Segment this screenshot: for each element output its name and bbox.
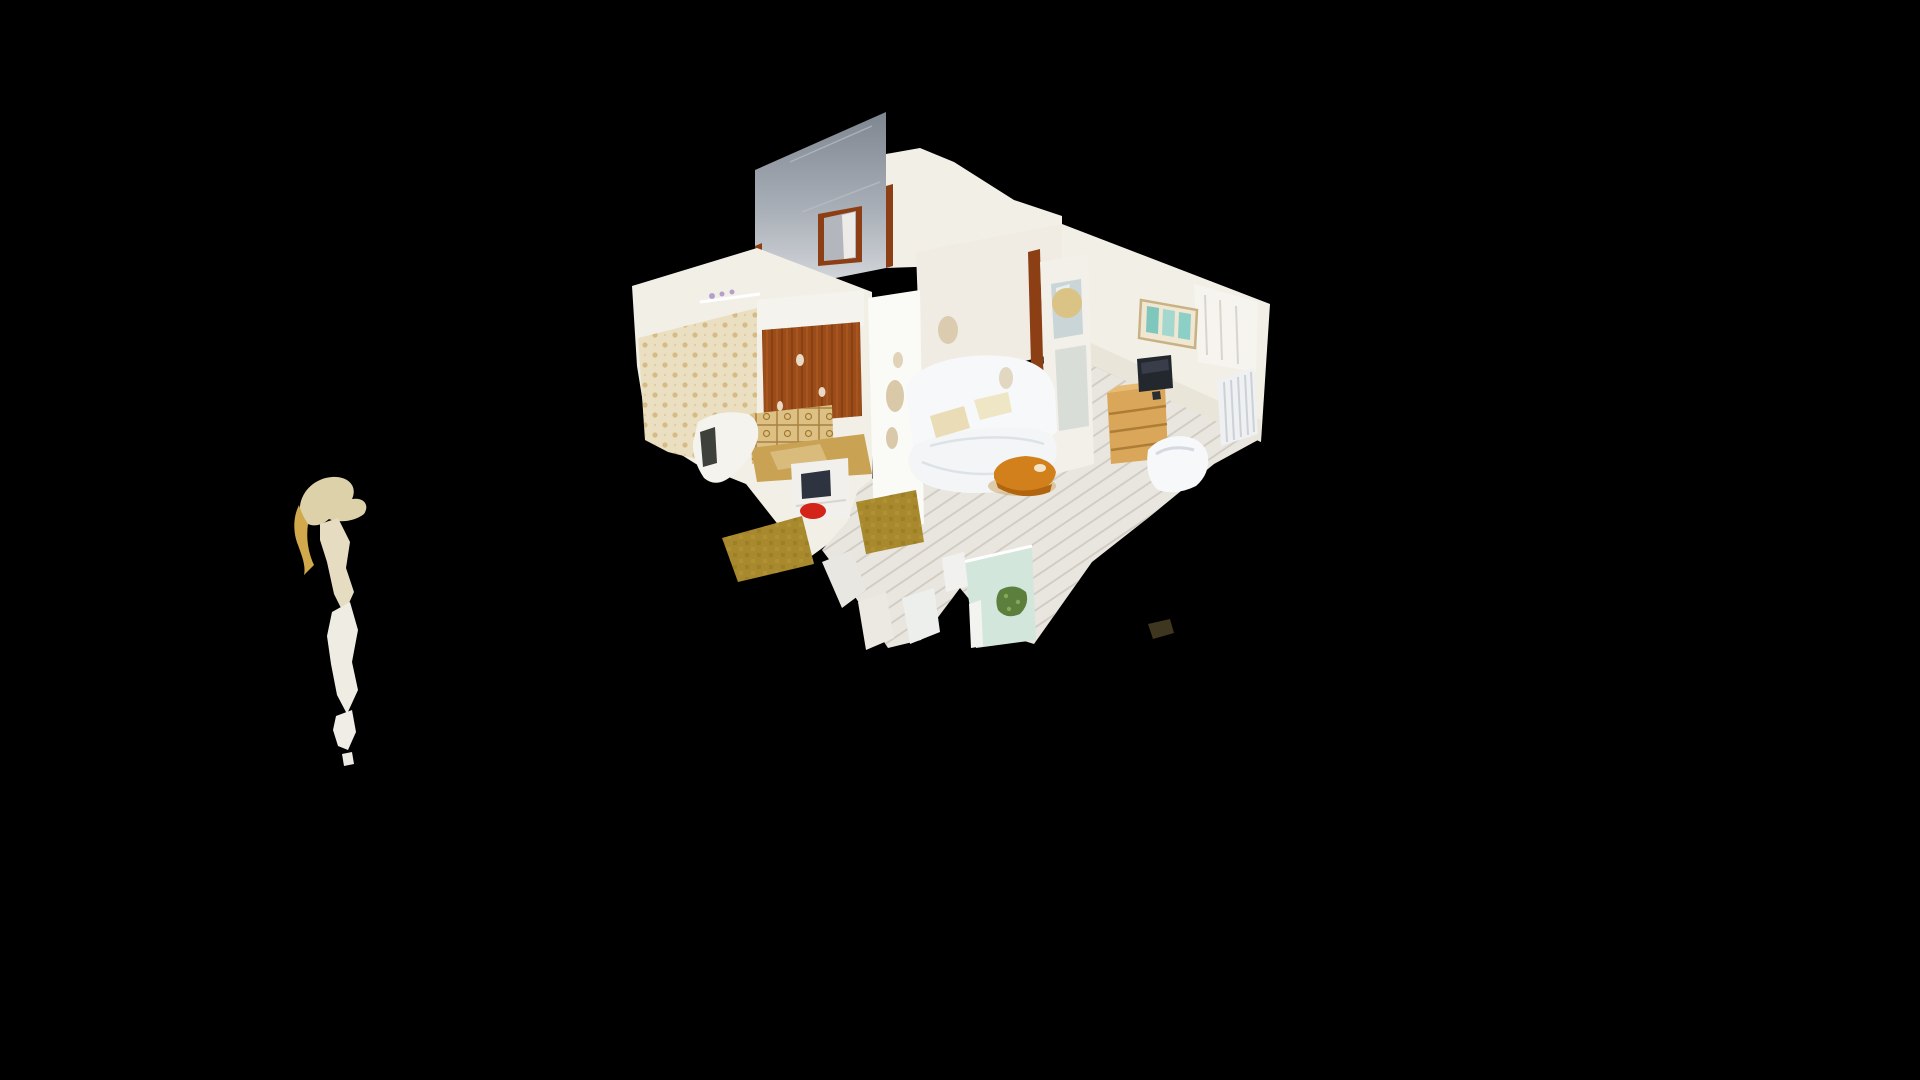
scan-blob-artifact bbox=[1052, 288, 1082, 318]
dollhouse-viewer[interactable] bbox=[0, 0, 1920, 1080]
fragment-piece bbox=[333, 710, 356, 750]
scan-hole bbox=[819, 387, 826, 397]
oven-window bbox=[801, 470, 831, 499]
tv-stand bbox=[1152, 391, 1161, 400]
dark-floor-shard bbox=[1148, 619, 1174, 639]
scan-tear-patch bbox=[893, 352, 903, 368]
red-object bbox=[800, 503, 826, 519]
scan-tear-patch bbox=[886, 380, 904, 412]
fragment-tip bbox=[342, 752, 354, 766]
scan-hole bbox=[777, 401, 783, 411]
artwork-pane bbox=[1162, 309, 1175, 337]
scan-hole bbox=[1034, 464, 1046, 472]
dollhouse-3d-canvas[interactable] bbox=[0, 0, 1920, 1080]
fragment-top-blob bbox=[300, 477, 366, 525]
stray-scan-fragment bbox=[294, 477, 366, 766]
scan-hole bbox=[796, 354, 804, 366]
plant-leaf bbox=[1004, 594, 1008, 598]
door-frame-right-strip bbox=[886, 184, 893, 268]
plant-leaf bbox=[1007, 607, 1011, 611]
door-mirror-lower bbox=[1055, 345, 1089, 431]
shelf-trinket bbox=[720, 292, 725, 297]
table-leg bbox=[969, 600, 983, 648]
chair-fragment bbox=[942, 552, 968, 592]
fragment-lower-sliver bbox=[327, 602, 358, 714]
scan-tear-patch bbox=[886, 427, 898, 449]
scan-tear-patch bbox=[938, 316, 958, 344]
apartment-scan bbox=[632, 112, 1270, 650]
armchair bbox=[1147, 436, 1208, 492]
bathtub-opening bbox=[700, 427, 717, 467]
plant-leaf bbox=[1016, 600, 1020, 604]
artwork-pane bbox=[1178, 312, 1191, 340]
entry-door-leaf bbox=[842, 212, 855, 259]
shelf-trinket bbox=[730, 290, 735, 295]
shelf-trinket bbox=[709, 293, 715, 299]
fragment-middle-sliver bbox=[320, 518, 354, 614]
scan-tear-patch bbox=[999, 367, 1013, 389]
artwork-pane bbox=[1146, 306, 1159, 334]
